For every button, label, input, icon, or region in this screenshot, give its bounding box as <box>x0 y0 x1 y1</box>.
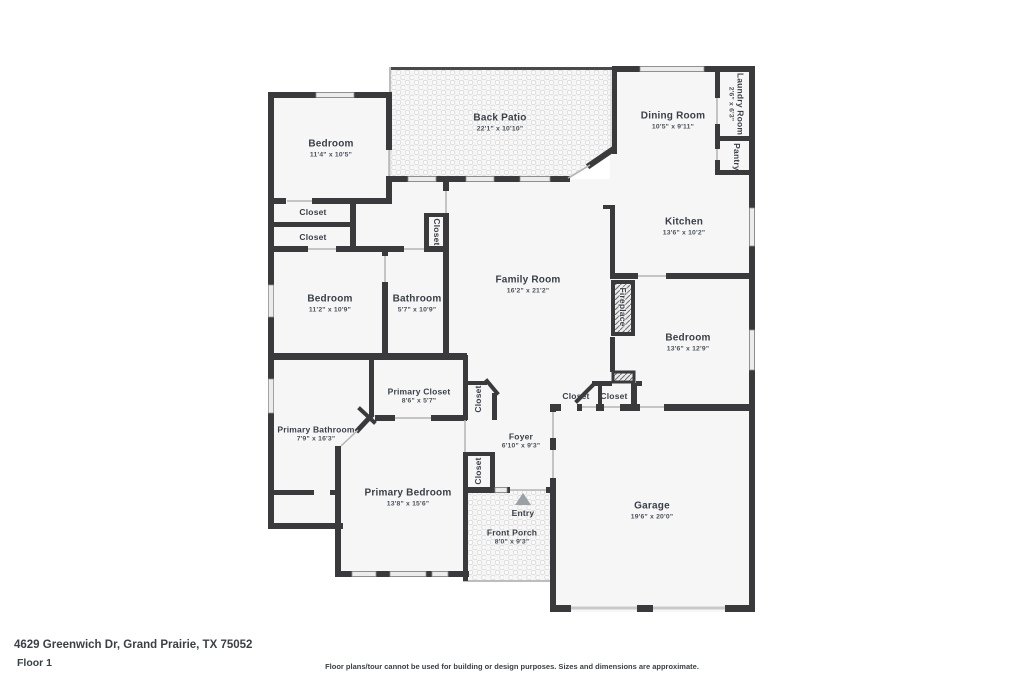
room-label-closet-foyer-left: Closet <box>562 391 589 401</box>
room-label-foyer: Foyer 6'10" x 9'3" <box>502 431 541 450</box>
disclaimer-text: Floor plans/tour cannot be used for buil… <box>0 662 1024 671</box>
room-label-closet-primary-hall: Closet <box>473 457 483 484</box>
room-label-family-room: Family Room 16'2" x 21'2" <box>496 274 561 295</box>
room-label-closet-upper: Closet <box>299 207 326 217</box>
room-label-bedroom-top-left: Bedroom 11'4" x 10'5" <box>308 138 353 159</box>
room-label-entry: Entry <box>512 508 535 518</box>
room-label-fireplace: Fireplace <box>618 287 628 326</box>
room-label-closet-hall: Closet <box>432 218 442 245</box>
room-label-bedroom-left: Bedroom 11'2" x 10'9" <box>307 293 352 314</box>
room-label-primary-bedroom: Primary Bedroom 13'8" x 15'6" <box>365 487 452 508</box>
room-label-back-patio: Back Patio 22'1" x 10'10" <box>473 112 526 133</box>
room-label-dining-room: Dining Room 10'5" x 9'11" <box>641 110 705 131</box>
room-label-primary-bathroom: Primary Bathroom 7'9" x 16'3" <box>277 424 354 443</box>
room-label-garage: Garage 19'6" x 20'0" <box>631 500 674 521</box>
floorplan-page: Bedroom 11'4" x 10'5" Back Patio 22'1" x… <box>0 0 1024 682</box>
room-label-bathroom: Bathroom 5'7" x 10'9" <box>393 293 442 314</box>
room-label-pantry: Pantry <box>732 143 742 171</box>
room-label-kitchen: Kitchen 13'6" x 10'2" <box>663 216 706 237</box>
room-label-laundry-room: Laundry Room 2'6" x 6'3" <box>726 73 745 135</box>
property-address: 4629 Greenwich Dr, Grand Prairie, TX 750… <box>14 639 252 651</box>
room-label-front-porch: Front Porch 8'0" x 9'3" <box>487 527 537 546</box>
room-label-closet-foyer-right: Closet <box>600 391 627 401</box>
room-label-closet-lower: Closet <box>299 232 326 242</box>
room-label-bedroom-right: Bedroom 13'6" x 12'9" <box>665 332 710 353</box>
floorplan-walls <box>0 0 1024 682</box>
room-label-primary-closet: Primary Closet 8'6" x 5'7" <box>388 386 451 405</box>
room-label-closet-angled: Closet <box>473 385 483 412</box>
